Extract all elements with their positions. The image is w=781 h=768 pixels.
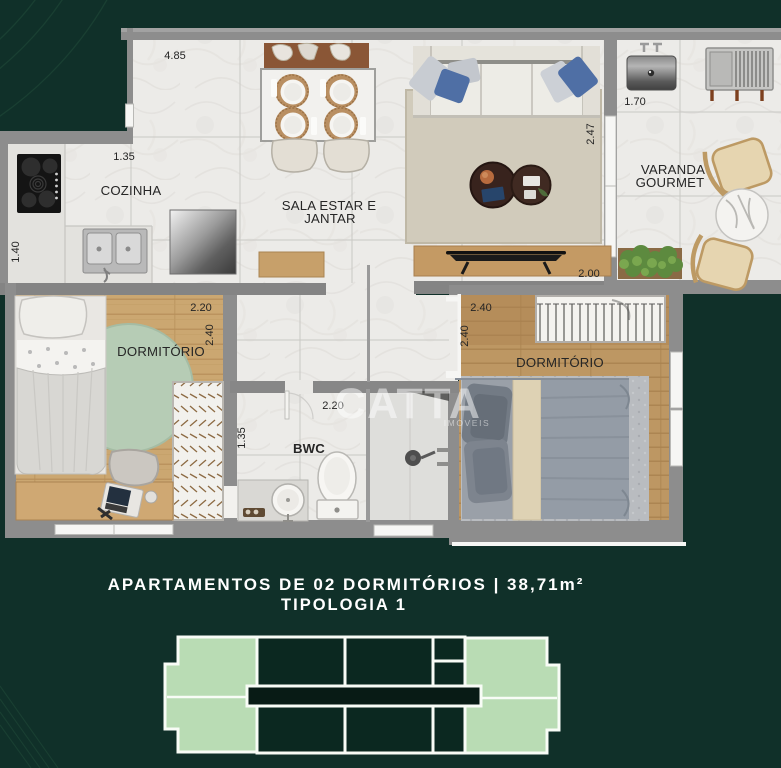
svg-text:1.35: 1.35: [236, 427, 248, 448]
svg-text:1.40: 1.40: [10, 241, 22, 262]
svg-text:2.40: 2.40: [470, 302, 491, 314]
svg-text:2.47: 2.47: [585, 123, 597, 144]
svg-text:IMÓVEIS: IMÓVEIS: [444, 418, 491, 428]
svg-text:COZINHA: COZINHA: [101, 183, 162, 198]
svg-text:DORMITÓRIO: DORMITÓRIO: [516, 355, 604, 370]
svg-text:2.40: 2.40: [204, 324, 216, 345]
svg-text:2.40: 2.40: [459, 325, 471, 346]
svg-text:2.20: 2.20: [190, 302, 211, 314]
svg-text:4.85: 4.85: [164, 50, 185, 62]
svg-text:1.70: 1.70: [624, 96, 645, 108]
svg-text:1.35: 1.35: [113, 151, 134, 163]
svg-text:JANTAR: JANTAR: [304, 211, 356, 226]
svg-text:GOURMET: GOURMET: [636, 175, 705, 190]
svg-text:TIPOLOGIA 1: TIPOLOGIA 1: [281, 596, 407, 614]
svg-text:DORMITÓRIO: DORMITÓRIO: [117, 344, 205, 359]
svg-text:2.00: 2.00: [578, 268, 599, 280]
svg-text:BWC: BWC: [293, 441, 325, 456]
svg-text:APARTAMENTOS DE 02 DORMITÓRIOS: APARTAMENTOS DE 02 DORMITÓRIOS | 38,71m²: [108, 575, 585, 594]
